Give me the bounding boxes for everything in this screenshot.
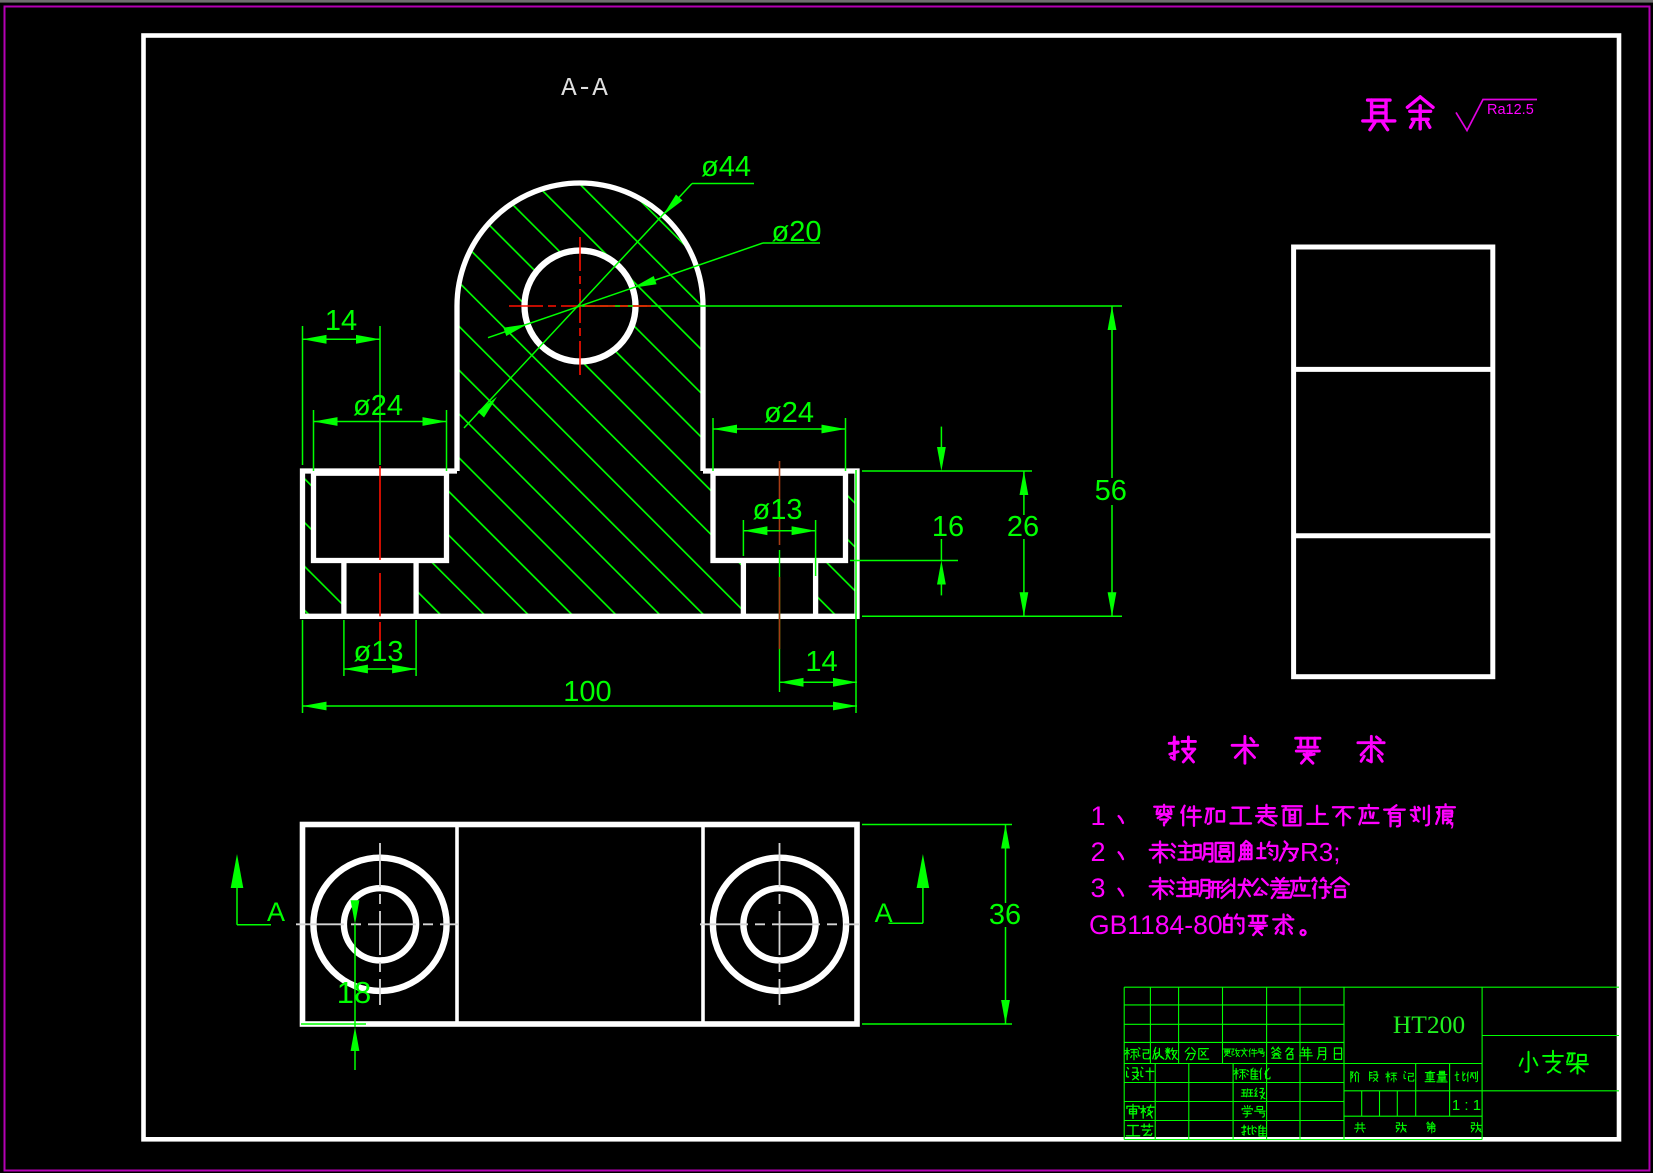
svg-text:26: 26 [1007,511,1039,543]
svg-text:ø13: ø13 [354,636,404,668]
svg-text:ø24: ø24 [353,390,403,422]
svg-text:A: A [875,898,893,928]
svg-text:ø20: ø20 [772,216,822,248]
svg-text:1 : 1: 1 : 1 [1452,1097,1481,1114]
svg-text:ø13: ø13 [753,494,803,526]
svg-text:56: 56 [1095,475,1127,507]
svg-text:14: 14 [325,305,357,337]
svg-text:;: ; [1448,801,1456,831]
svg-text:ø24: ø24 [764,397,814,429]
svg-text:HT200: HT200 [1393,1010,1465,1039]
svg-text:R3;: R3; [1300,837,1340,867]
svg-text:16: 16 [932,511,964,543]
svg-text:36: 36 [989,899,1021,931]
svg-text:2: 2 [1090,837,1105,867]
svg-text:A: A [267,897,285,927]
svg-text:Ra12.5: Ra12.5 [1487,102,1534,118]
svg-text:A-A: A-A [561,73,608,103]
svg-text:GB1184-80: GB1184-80 [1089,910,1223,940]
svg-text:14: 14 [805,646,837,678]
svg-text:18: 18 [337,975,371,1010]
svg-text:100: 100 [563,676,611,708]
svg-text:3: 3 [1090,873,1105,903]
svg-text:ø44: ø44 [701,151,751,183]
svg-text:1: 1 [1090,801,1105,831]
